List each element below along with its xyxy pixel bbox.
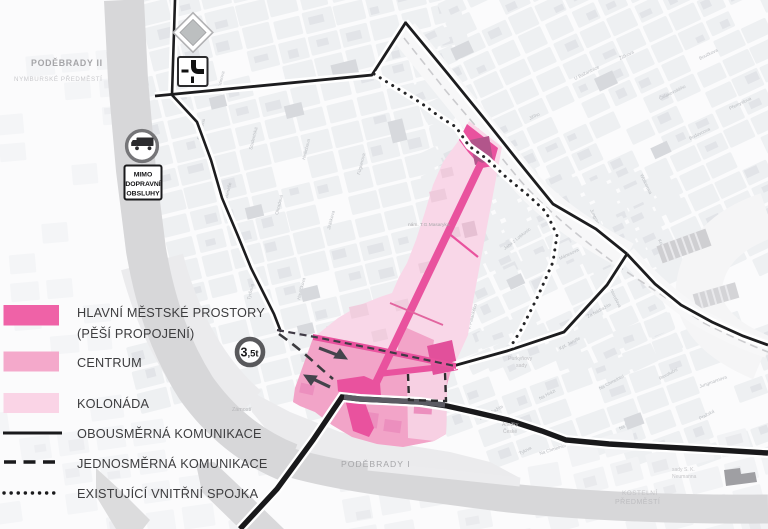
- svg-text:České: České: [503, 428, 517, 435]
- svg-text:KOSTELNÍ: KOSTELNÍ: [622, 488, 658, 497]
- svg-text:MIMO: MIMO: [134, 172, 153, 179]
- svg-text:nám. T.G.Masaryka: nám. T.G.Masaryka: [408, 222, 450, 228]
- svg-text:Zámostí: Zámostí: [232, 407, 252, 413]
- svg-text:Purkyňovy: Purkyňovy: [508, 356, 533, 362]
- svg-text:Anežky: Anežky: [502, 422, 519, 428]
- svg-text:KOLONÁDA: KOLONÁDA: [77, 396, 149, 411]
- svg-text:Neumanna: Neumanna: [672, 474, 697, 480]
- svg-text:DOPRAVNÍ: DOPRAVNÍ: [125, 179, 161, 188]
- svg-text:CENTRUM: CENTRUM: [77, 356, 142, 370]
- svg-text:PŘEDMĚSTÍ: PŘEDMĚSTÍ: [615, 497, 660, 506]
- svg-text:sady: sady: [516, 363, 527, 369]
- svg-text:OBSLUHY: OBSLUHY: [126, 191, 160, 198]
- svg-text:JEDNOSMĚRNÁ KOMUNIKACE: JEDNOSMĚRNÁ KOMUNIKACE: [77, 456, 268, 471]
- svg-text:NYMBURSKÉ PŘEDMĚSTÍ: NYMBURSKÉ PŘEDMĚSTÍ: [14, 75, 102, 83]
- svg-text:OBOUSMĚRNÁ KOMUNIKACE: OBOUSMĚRNÁ KOMUNIKACE: [77, 426, 262, 441]
- svg-text:(PĚŠÍ PROPOJENÍ): (PĚŠÍ PROPOJENÍ): [77, 326, 194, 341]
- svg-text:EXISTUJÍCÍ VNITŘNÍ SPOJKA: EXISTUJÍCÍ VNITŘNÍ SPOJKA: [77, 486, 259, 501]
- svg-text:sady S. K.: sady S. K.: [672, 467, 695, 473]
- svg-text:PODĚBRADY I: PODĚBRADY I: [341, 459, 411, 469]
- svg-text:3,5t: 3,5t: [241, 346, 260, 360]
- svg-text:HLAVNÍ MĚSTSKÉ PROSTORY: HLAVNÍ MĚSTSKÉ PROSTORY: [77, 305, 265, 320]
- svg-text:PODĚBRADY II: PODĚBRADY II: [31, 57, 103, 68]
